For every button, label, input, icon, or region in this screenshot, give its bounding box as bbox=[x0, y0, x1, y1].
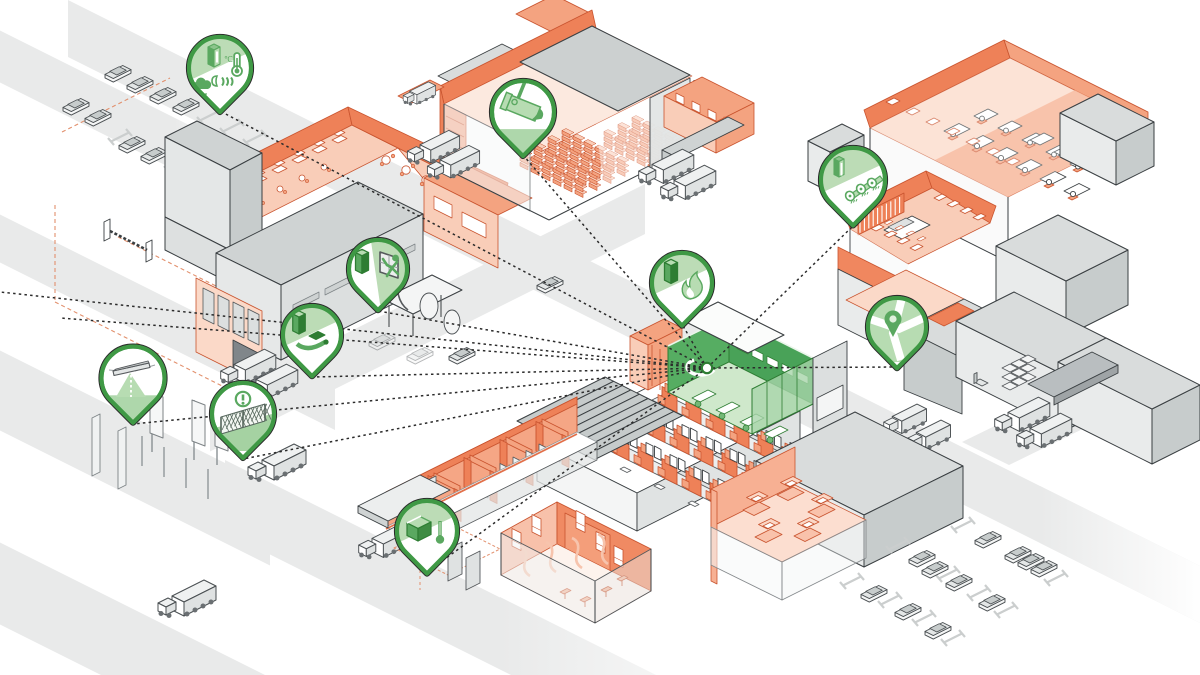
svg-text:℃: ℃ bbox=[224, 55, 233, 64]
